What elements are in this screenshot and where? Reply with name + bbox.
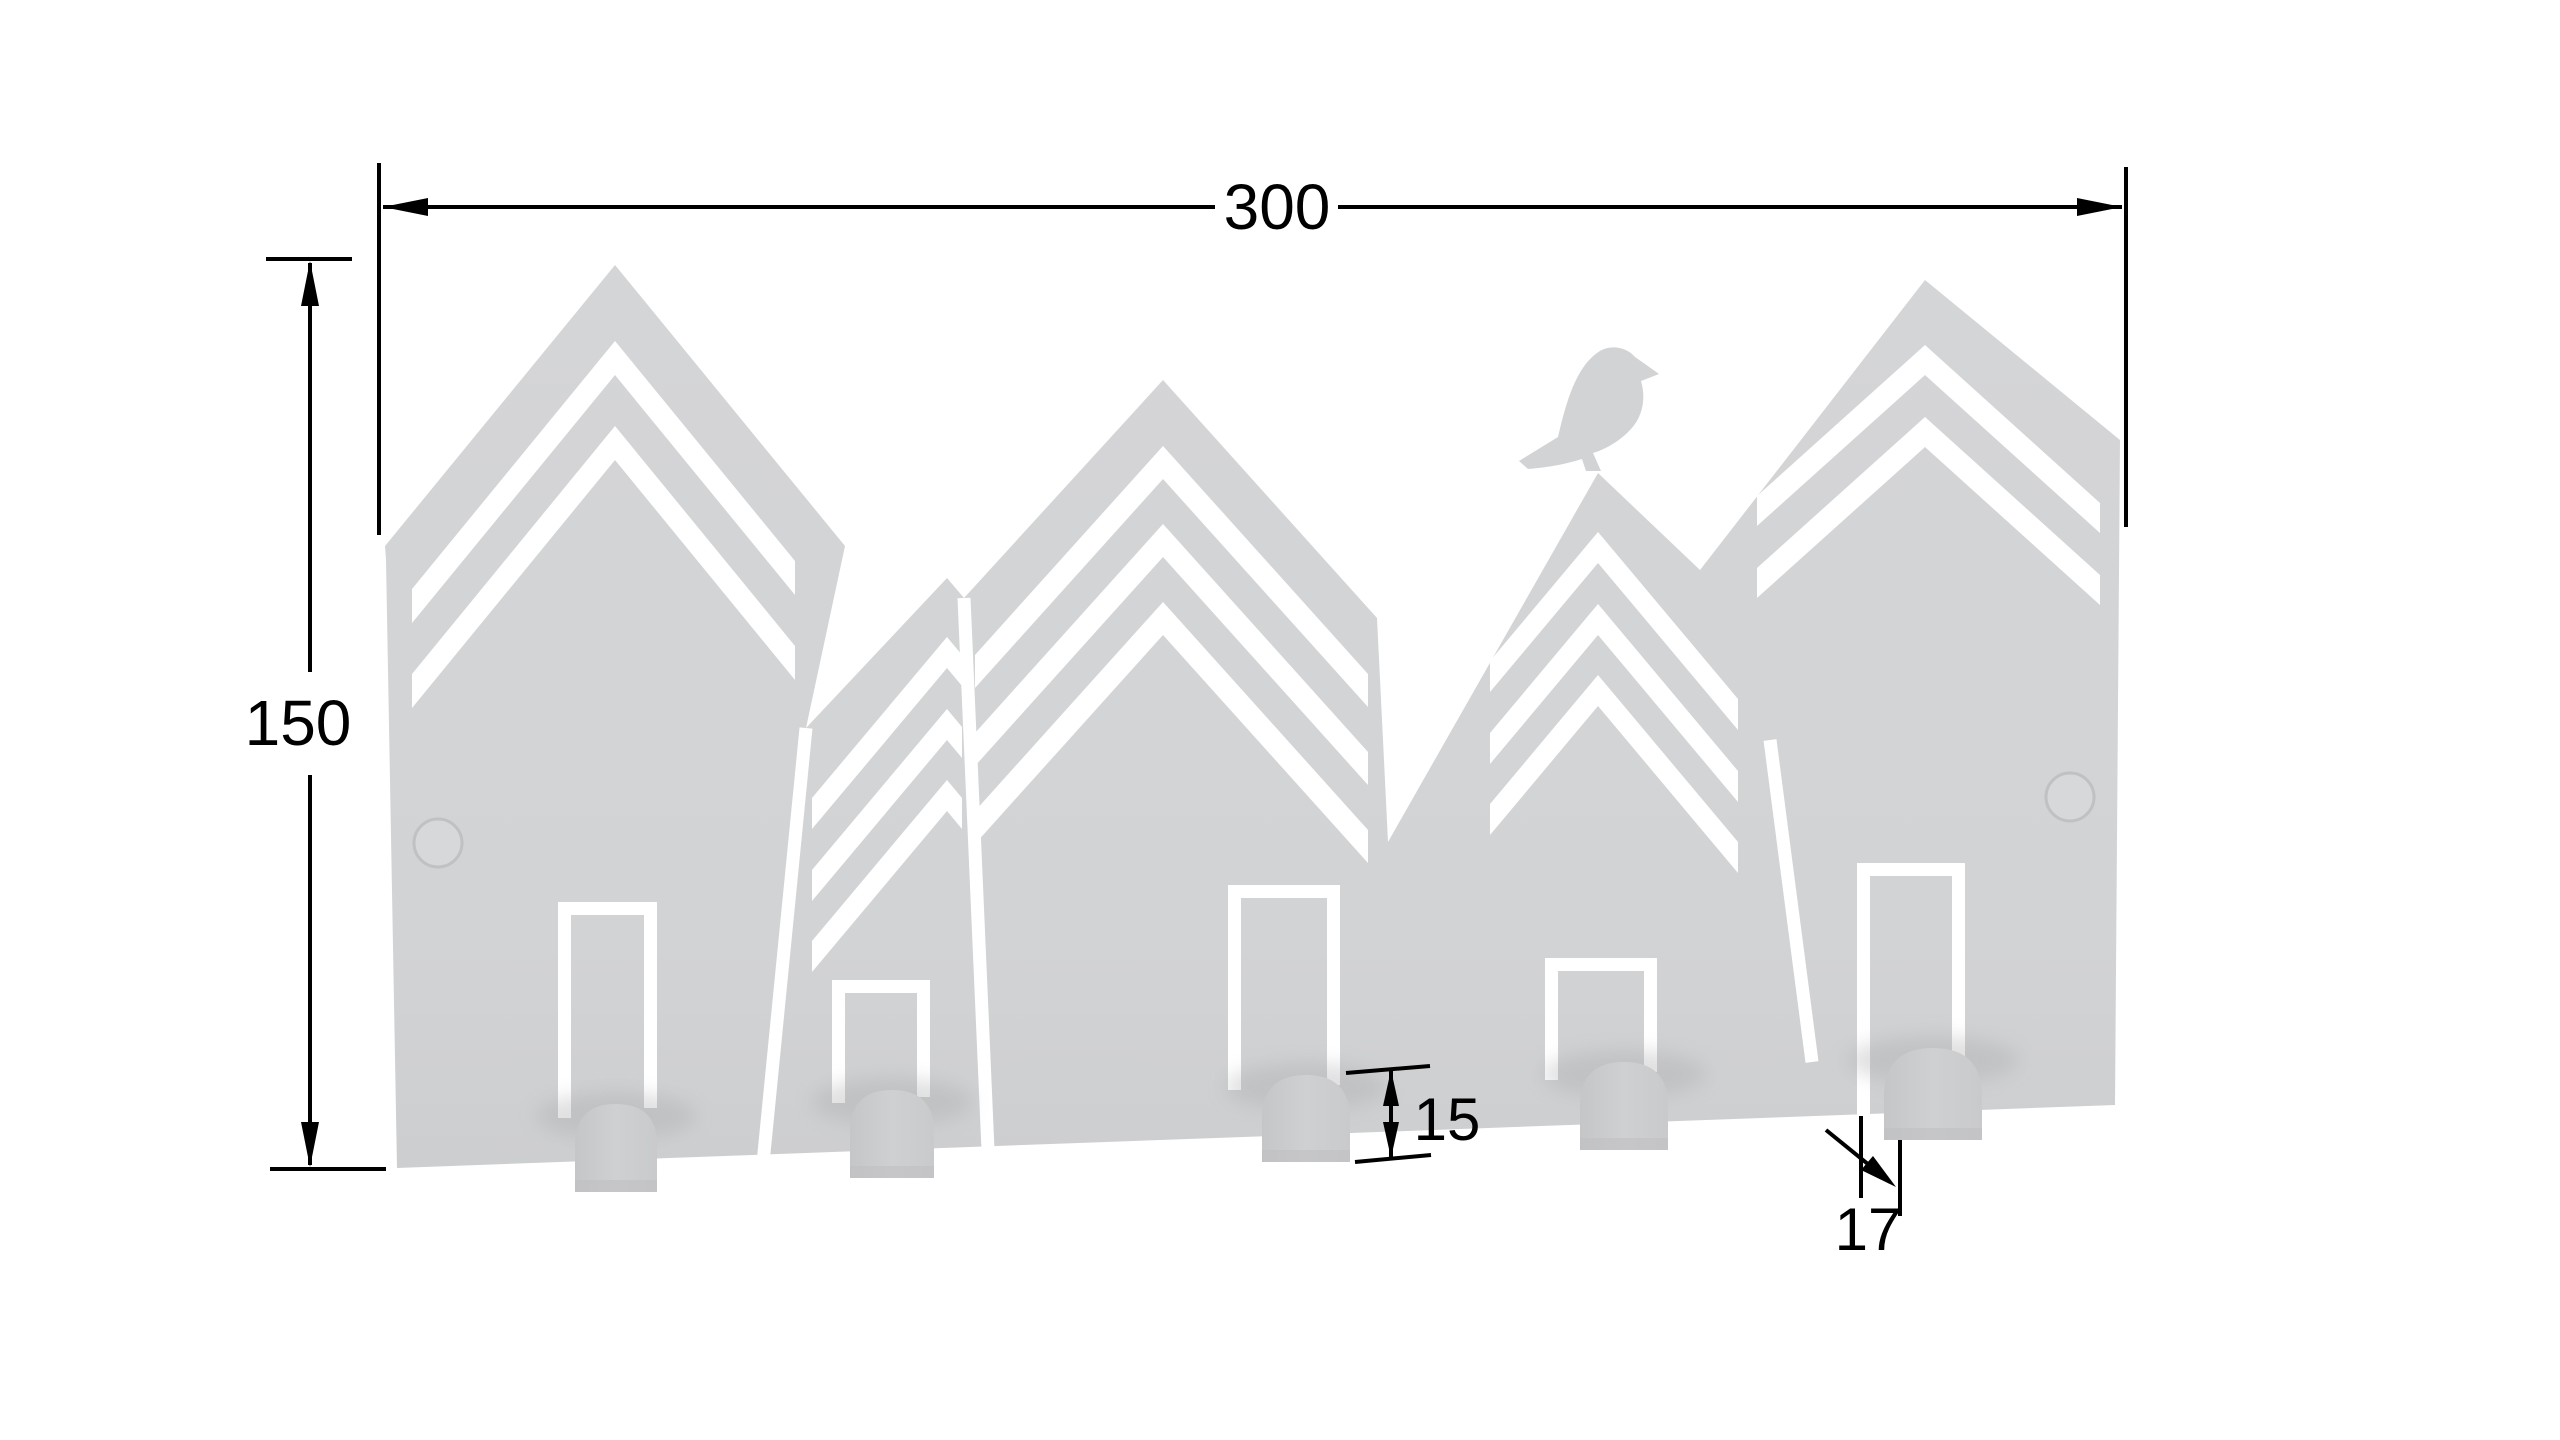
arrowhead-left <box>383 198 428 216</box>
height-dimension-label: 150 <box>245 687 352 759</box>
hook-2 <box>850 1090 934 1178</box>
hook-5 <box>1884 1048 1982 1140</box>
hook-width-dimension-label: 17 <box>1835 1196 1902 1263</box>
screw-hole-right <box>2046 773 2094 821</box>
technical-drawing-canvas: 300 150 15 17 <box>0 0 2560 1440</box>
hook-height-dimension-label: 15 <box>1414 1086 1481 1153</box>
screw-hole-left <box>414 819 462 867</box>
width-dimension-label: 300 <box>1224 171 1331 243</box>
hook-3 <box>1262 1075 1350 1162</box>
bird-icon <box>1519 347 1659 471</box>
panel-silhouette <box>385 265 2120 1168</box>
coat-rack-drawing: 300 150 15 17 <box>0 0 2560 1440</box>
arrowhead-right <box>2077 198 2122 216</box>
arrowhead-down <box>301 1122 319 1167</box>
arrowhead-down <box>1383 1122 1399 1158</box>
hook-1 <box>575 1104 657 1192</box>
arrowhead-up <box>301 261 319 306</box>
hook-4 <box>1580 1062 1668 1150</box>
